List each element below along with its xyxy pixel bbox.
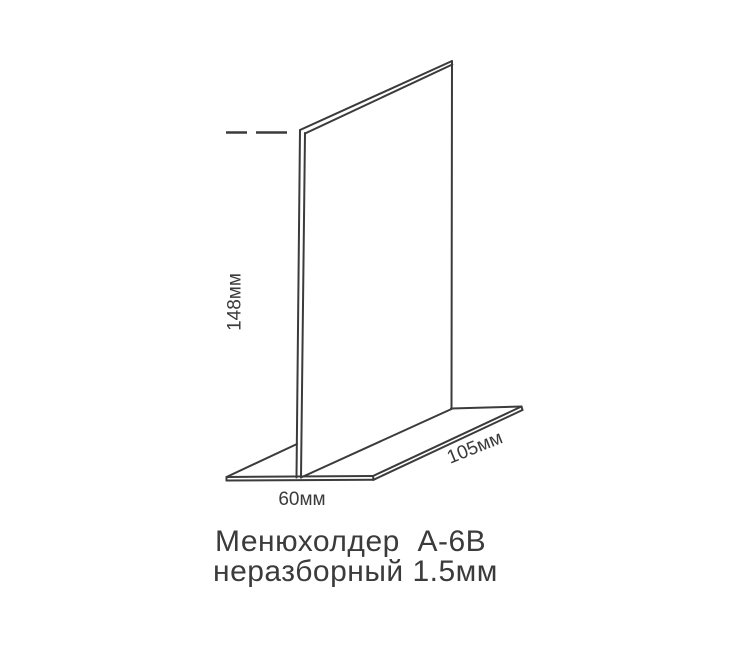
menu-holder-dimension-diagram: 148мм 60мм 105мм Менюхолдер А-6В неразбо… <box>0 0 746 651</box>
panel-bottom-edge <box>301 409 452 478</box>
base-front-edge-top <box>227 476 374 477</box>
panel-top-edge-inner <box>305 65 452 134</box>
base-front-edge-bottom <box>227 480 374 481</box>
length-dimension-label: 105мм <box>444 427 505 468</box>
base-back-edge <box>451 407 522 409</box>
depth-dimension-label: 60мм <box>278 489 325 510</box>
height-dimension-label: 148мм <box>225 273 246 331</box>
product-title-line1: Менюхолдер А-6В <box>215 525 486 558</box>
panel-left-edge-inner <box>301 133 305 478</box>
stand-vertical-panel <box>297 61 453 478</box>
product-caption: Менюхолдер А-6В неразборный 1.5мм <box>213 525 498 588</box>
product-title-line2: неразборный 1.5мм <box>213 555 498 588</box>
diagram-page: 148мм 60мм 105мм Менюхолдер А-6В неразбо… <box>0 0 746 651</box>
panel-right-edge <box>452 61 453 409</box>
panel-left-edge-outer <box>297 130 301 478</box>
base-left-back-edge <box>227 444 298 477</box>
panel-top-edge-outer <box>300 61 452 130</box>
